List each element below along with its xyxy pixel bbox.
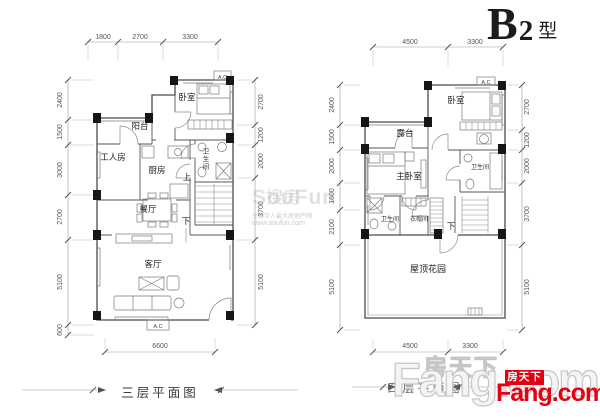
- plan4-stairs: [430, 196, 488, 233]
- p4-dim-right-4: 3700: [523, 199, 533, 229]
- p4-dim-left-1: 2400: [328, 90, 338, 120]
- p4-room-terrace: 露台: [390, 128, 420, 138]
- p4-dim-left-4: 1600: [328, 181, 338, 211]
- p4-dim-top-2: 3300: [460, 38, 490, 48]
- p3-dim-left-3: 3000: [56, 155, 66, 185]
- p4-dim-left-3: 2000: [328, 151, 338, 181]
- unit-type-suffix: 型: [538, 16, 557, 43]
- p3-dim-top-1: 1800: [88, 33, 118, 43]
- p3-room-bath: 卫生间: [199, 148, 209, 184]
- p4-dim-right-5: 5100: [523, 272, 533, 302]
- p3-dim-left-2: 1500: [56, 117, 66, 147]
- p3-dim-top-3: 3300: [175, 33, 205, 43]
- unit-type-title: B 2 型: [487, 2, 557, 46]
- plan3-stairs: [186, 184, 232, 243]
- p3-stairs-down: 下: [179, 216, 193, 226]
- unit-number: 2: [519, 16, 534, 46]
- dimension-lines: [68, 42, 522, 352]
- p4-stairs-down: 下: [444, 221, 458, 231]
- p3-room-bedroom: 卧室: [172, 92, 202, 102]
- extension-lines: [71, 44, 519, 349]
- p3-dim-right-4: 3700: [257, 194, 267, 224]
- p3-room-dining: 餐厅: [133, 204, 163, 214]
- p4-ac-label: A.C: [477, 78, 495, 88]
- p3-dim-left-6: 600: [56, 315, 66, 345]
- p3-room-living: 客厅: [138, 259, 168, 269]
- p4-room-closet: 衣帽间: [406, 215, 432, 225]
- fang-logo-text: Fang.com: [496, 379, 600, 407]
- p4-dim-left-5: 2100: [328, 212, 338, 242]
- p3-dim-left-5: 5100: [56, 267, 66, 297]
- plan3-title: 三层平面图: [115, 382, 205, 401]
- p3-room-maid: 工人房: [92, 152, 134, 162]
- p3-dim-right-1: 2700: [257, 87, 267, 117]
- plan4-windows: [365, 88, 505, 225]
- p4-dim-right-1: 2700: [523, 92, 533, 122]
- p4-dim-left-2: 1500: [328, 122, 338, 152]
- p3-ac-label-bottom: A.C: [147, 322, 169, 332]
- plan3-walls: [97, 80, 233, 322]
- dimension-ticks: [65, 39, 525, 355]
- p3-ac-label-top: A.C: [214, 73, 231, 83]
- unit-letter: B: [487, 2, 518, 46]
- p3-dim-top-2: 2700: [125, 33, 155, 43]
- p4-dim-left-6: 5100: [328, 272, 338, 302]
- p4-room-bedroom: 卧室: [441, 95, 471, 105]
- p3-dim-bottom-1: 6600: [145, 342, 175, 352]
- p3-room-balcony: 阳台: [125, 121, 155, 131]
- p3-dim-right-3: 2000: [257, 146, 267, 176]
- p4-room-bath1: 卫生间: [466, 163, 494, 173]
- p4-room-bath2: 卫生间: [377, 215, 403, 225]
- p4-room-master: 主卧室: [389, 171, 429, 181]
- p4-dim-bottom-1: 4500: [395, 342, 425, 352]
- p4-dim-top-1: 4500: [395, 38, 425, 48]
- p4-dim-right-3: 2000: [523, 151, 533, 181]
- p3-dim-right-5: 5100: [257, 267, 267, 297]
- p3-stairs-up: 上: [180, 172, 194, 182]
- p3-dim-left-4: 2700: [56, 202, 66, 232]
- p3-dim-left-1: 2400: [56, 85, 66, 115]
- p4-room-roof-garden: 屋顶花园: [400, 264, 456, 274]
- p3-room-kitchen: 厨房: [142, 165, 172, 175]
- floorplan-page: B 2 型 1800 2700 3300 2400 1500 3000 2700…: [0, 0, 600, 419]
